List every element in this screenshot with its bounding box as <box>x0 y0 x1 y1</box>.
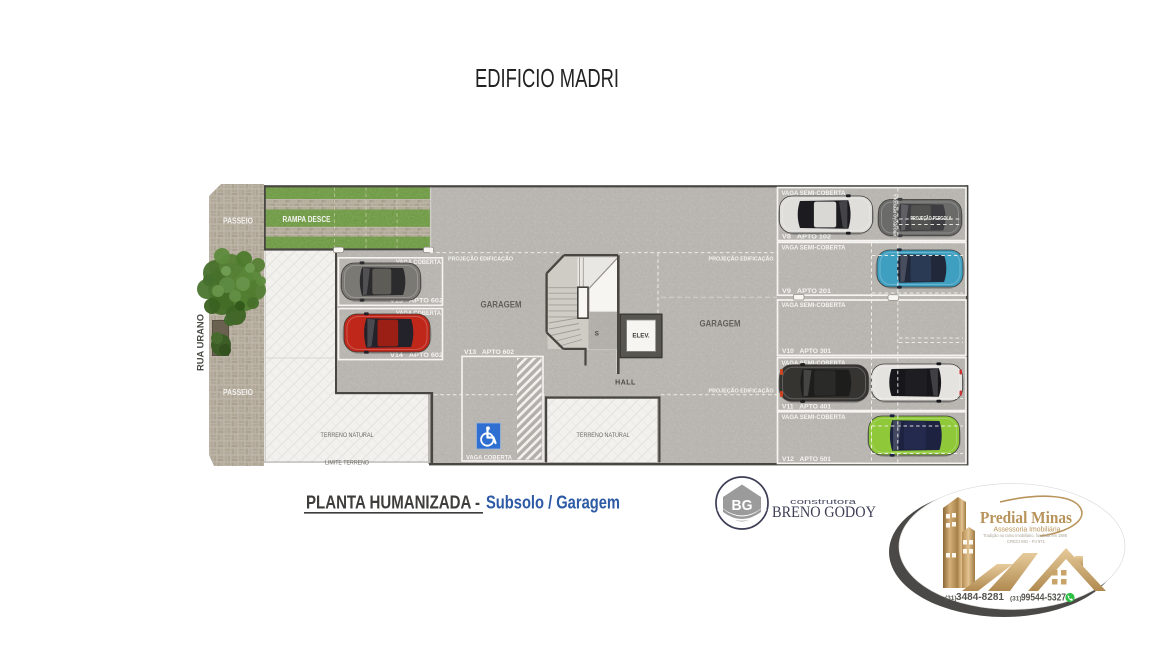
svg-text:ELEV.: ELEV. <box>632 333 650 340</box>
svg-text:V10 APTO 301: V10 APTO 301 <box>782 348 832 355</box>
svg-text:V13 APTO 602: V13 APTO 602 <box>464 349 515 356</box>
svg-text:(31): (31) <box>945 595 957 602</box>
svg-text:CRECI MG - PJ 971: CRECI MG - PJ 971 <box>1007 539 1046 544</box>
svg-text:(31): (31) <box>1010 596 1022 603</box>
svg-text:RUA URANO: RUA URANO <box>196 314 206 371</box>
svg-text:PROJEÇÃO EDIFICAÇÃO: PROJEÇÃO EDIFICAÇÃO <box>709 387 775 394</box>
svg-text:VAGA SEMI-COBERTA: VAGA SEMI-COBERTA <box>782 414 847 421</box>
svg-text:GARAGEM: GARAGEM <box>700 319 741 329</box>
svg-text:PLANTA HUMANIZADA -: PLANTA HUMANIZADA - <box>306 493 480 513</box>
svg-text:TERRENO NATURAL: TERRENO NATURAL <box>577 432 630 439</box>
svg-text:3484-8281: 3484-8281 <box>956 591 1004 603</box>
svg-text:BRENO GODOY: BRENO GODOY <box>772 504 876 521</box>
svg-text:V12 APTO 501: V12 APTO 501 <box>782 456 832 463</box>
svg-text:RAMPA DESCE: RAMPA DESCE <box>283 214 331 224</box>
svg-text:V11 APTO 401: V11 APTO 401 <box>782 403 832 410</box>
svg-text:LIMITE TERRENO: LIMITE TERRENO <box>325 460 369 467</box>
svg-text:TERRENO NATURAL: TERRENO NATURAL <box>321 432 374 439</box>
svg-text:VAGA COBERTA: VAGA COBERTA <box>466 454 512 461</box>
svg-text:S: S <box>595 330 600 337</box>
svg-text:PASSEIO: PASSEIO <box>223 217 253 226</box>
svg-text:PROJEÇÃO PERGOLA: PROJEÇÃO PERGOLA <box>911 215 952 222</box>
svg-text:EDIFICIO MADRI: EDIFICIO MADRI <box>475 63 619 93</box>
svg-text:GARAGEM: GARAGEM <box>481 299 522 309</box>
svg-text:99544-5327: 99544-5327 <box>1021 592 1066 604</box>
svg-text:VAGA SEMI-COBERTA: VAGA SEMI-COBERTA <box>782 302 847 309</box>
svg-text:V9 APTO 201: V9 APTO 201 <box>782 288 832 295</box>
svg-text:BG: BG <box>732 497 753 514</box>
svg-text:PASSEIO: PASSEIO <box>223 388 253 397</box>
svg-text:PROJEÇÃO EDIFICAÇÃO: PROJEÇÃO EDIFICAÇÃO <box>448 256 514 263</box>
svg-text:HALL: HALL <box>615 379 636 386</box>
svg-text:PROJEÇÃO EDIFICAÇÃO: PROJEÇÃO EDIFICAÇÃO <box>709 256 775 263</box>
svg-text:PROJEÇÃO PERGOLA: PROJEÇÃO PERGOLA <box>892 193 898 236</box>
svg-text:Tradição no ramo imobiliário,: Tradição no ramo imobiliário, fundada em… <box>983 533 1068 538</box>
svg-text:Subsolo / Garagem: Subsolo / Garagem <box>486 493 620 513</box>
svg-text:VAGA SEMI-COBERTA: VAGA SEMI-COBERTA <box>782 245 847 252</box>
